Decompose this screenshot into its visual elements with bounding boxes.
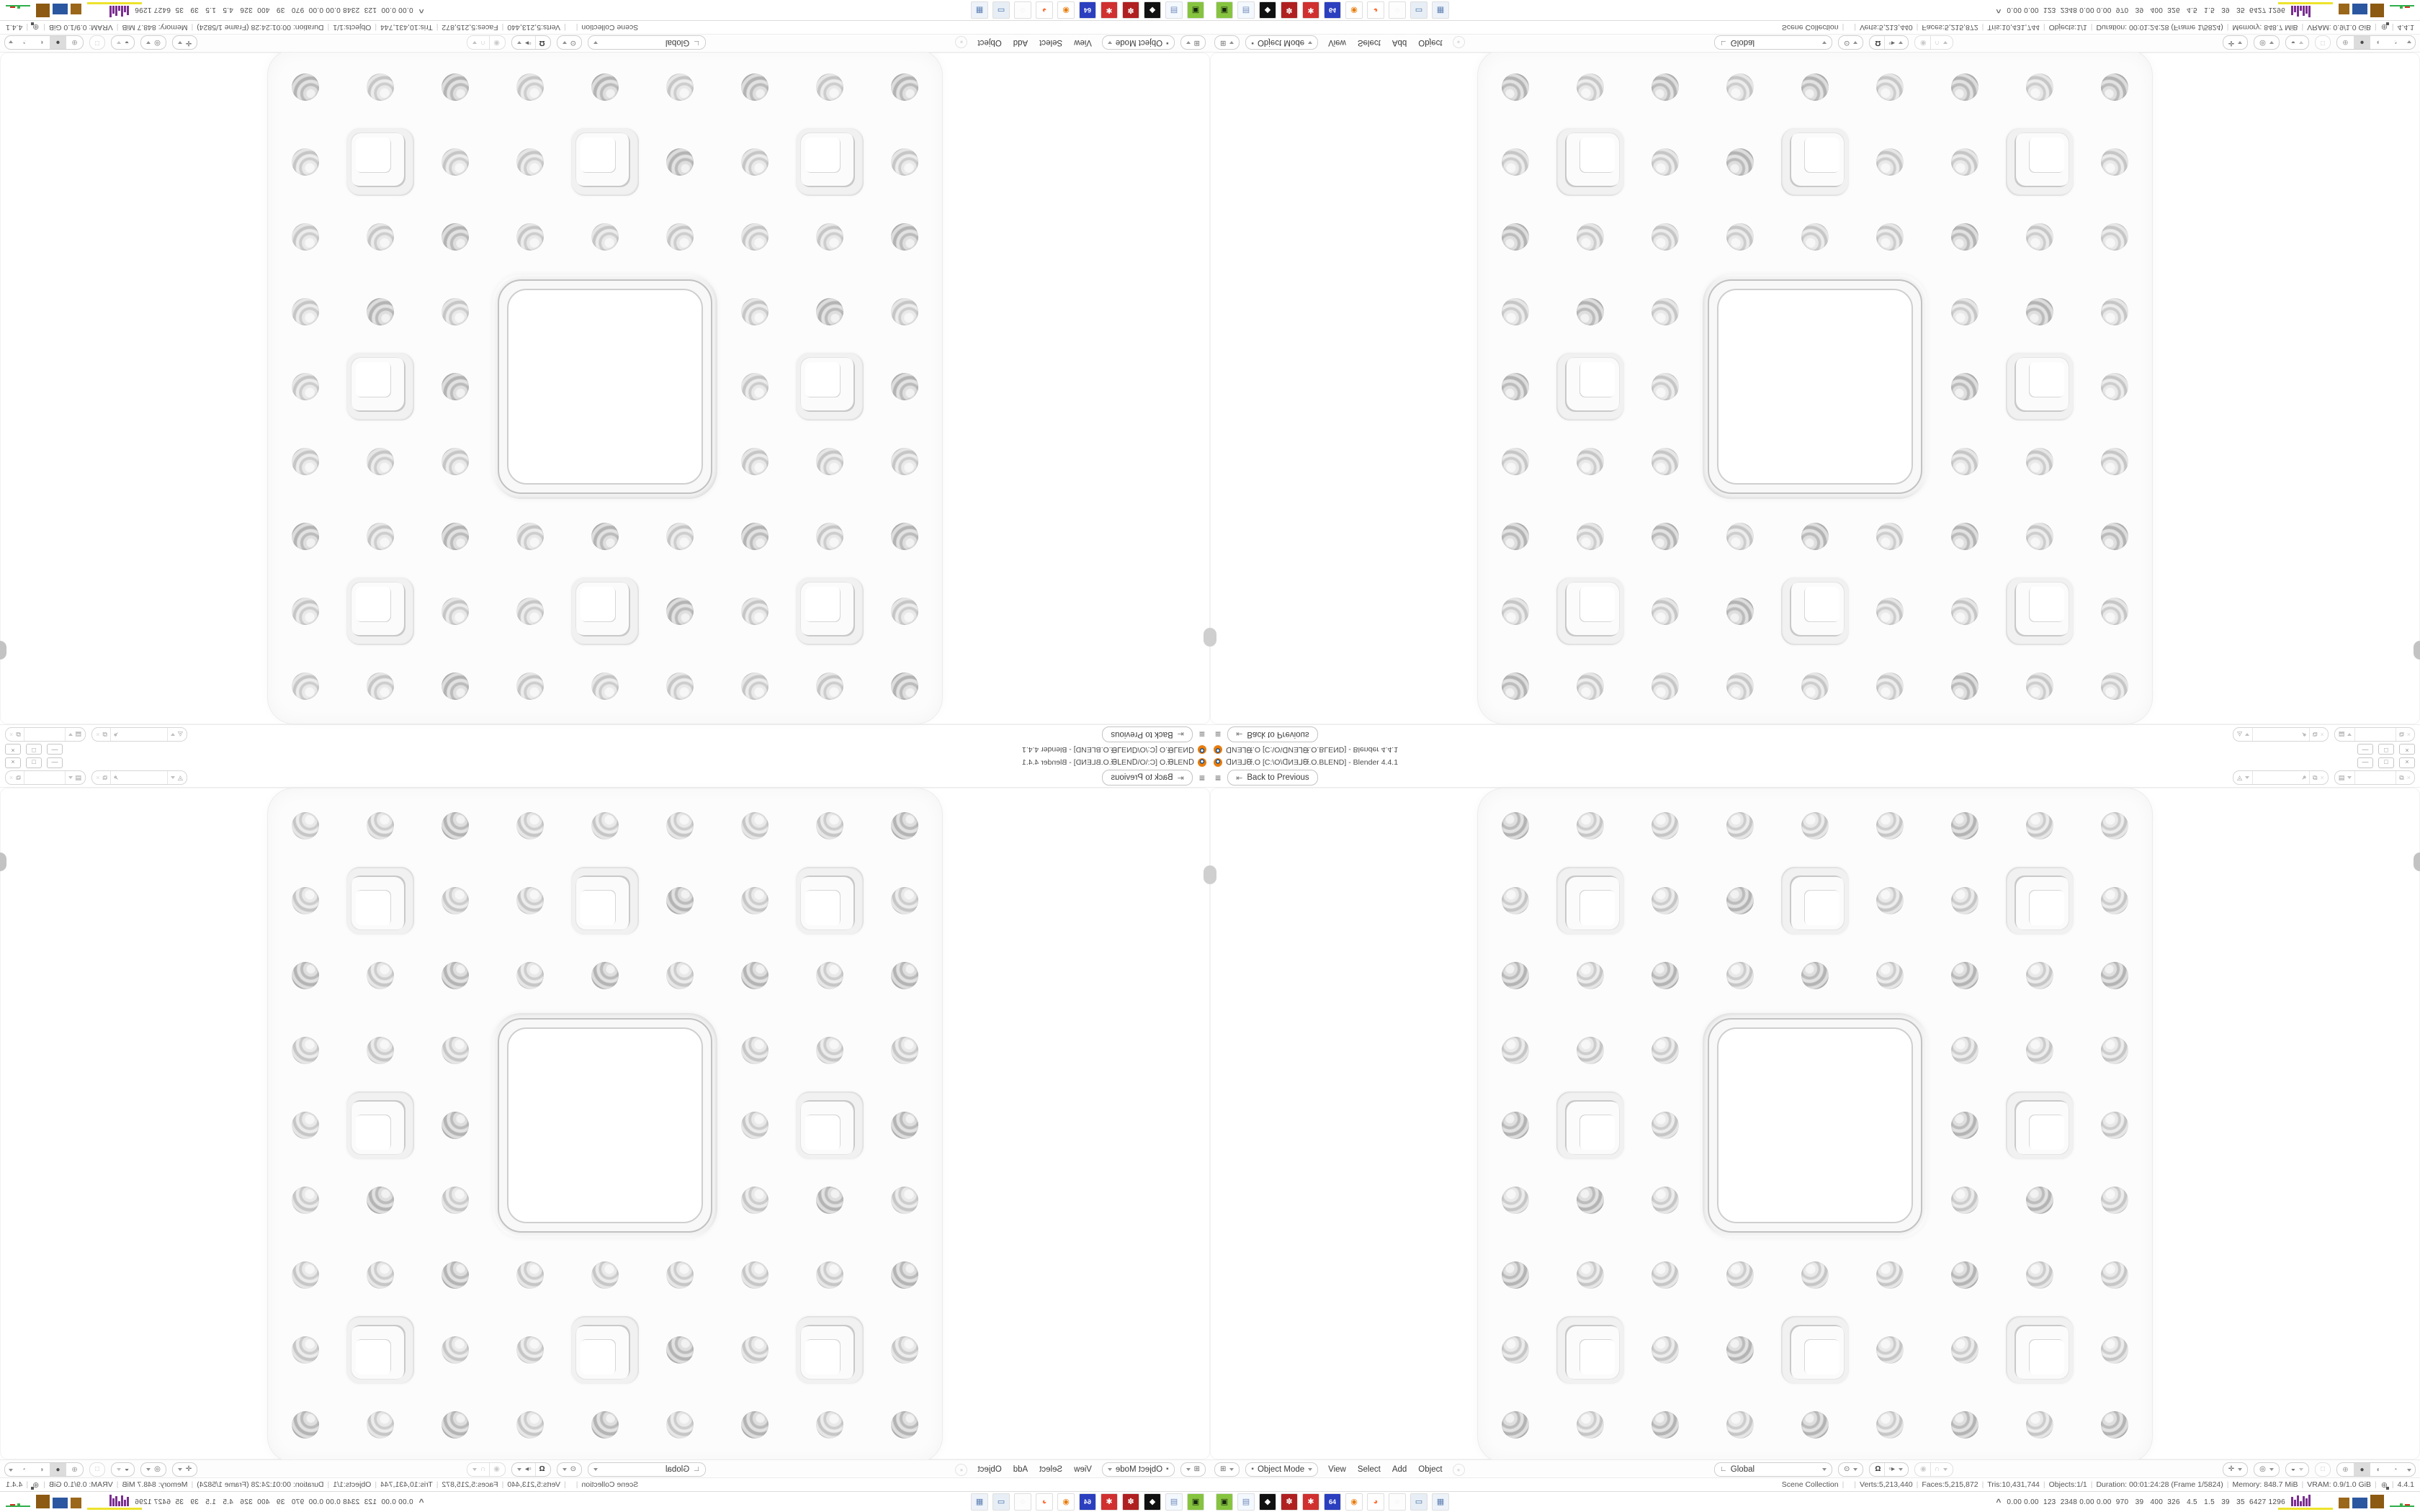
- sponge-hole: [1577, 298, 1604, 325]
- back-to-previous-button[interactable]: ⇤ Back to Previous: [1102, 770, 1193, 786]
- chevron-down-icon: [9, 1469, 13, 1472]
- snapping-control[interactable]: Ω ▫▸: [511, 1462, 551, 1477]
- menu-select[interactable]: Select: [1039, 38, 1062, 47]
- hamburger-menu-icon[interactable]: ≡: [1199, 773, 1205, 783]
- scene-selector[interactable]: ◬ ⧉ ×: [91, 770, 187, 785]
- minimize-button[interactable]: —: [47, 744, 63, 755]
- brown-meter-block: [71, 1498, 81, 1508]
- shading-wireframe-button[interactable]: ⊕: [2337, 36, 2354, 49]
- snap-to-icon: ▫▸: [525, 39, 532, 46]
- red-gear-icon[interactable]: ✱: [1101, 1493, 1118, 1511]
- pin-icon[interactable]: [114, 732, 118, 737]
- show-overlays-dropdown[interactable]: ◎: [2254, 1462, 2280, 1477]
- sponge-hole: [292, 223, 319, 251]
- toggle-xray-button[interactable]: □: [2315, 1462, 2331, 1477]
- view-layer-selector[interactable]: ▤ ⧉ ×: [2334, 770, 2415, 785]
- aida64-badge-icon[interactable]: ✽: [1122, 1, 1139, 19]
- xray-settings-dropdown[interactable]: ◒: [111, 35, 135, 50]
- sponge-hole: [2026, 962, 2053, 989]
- red-gear-icon[interactable]: ✱: [1302, 1, 1319, 19]
- view-layer-name-field[interactable]: [2354, 728, 2396, 741]
- calculator-icon[interactable]: ▦: [971, 1493, 988, 1511]
- sponge-hole: [516, 598, 544, 625]
- shading-rendered-button[interactable]: ◔: [2387, 1463, 2403, 1476]
- editor-type-button[interactable]: ⊞: [1180, 1462, 1206, 1477]
- gizmo-icon: ✛: [2228, 1466, 2234, 1473]
- sponge-hole: [1781, 577, 1849, 645]
- shading-rendered-button[interactable]: ◔: [17, 1463, 33, 1476]
- editor-type-button[interactable]: ⊞: [1180, 35, 1206, 50]
- sponge-hole: [1726, 73, 1754, 101]
- toolbar-toggle-tab[interactable]: [1210, 628, 1216, 647]
- sponge-hole: [2026, 812, 2053, 840]
- sponge-hole: [666, 598, 694, 625]
- viewport-3d[interactable]: [1210, 788, 2420, 1459]
- remote-desktop-icon[interactable]: ▭: [992, 1, 1010, 19]
- show-gizmo-dropdown[interactable]: ✛: [172, 35, 197, 50]
- sponge-hole: [1876, 598, 1904, 625]
- sponge-hole: [2026, 1187, 2053, 1214]
- transform-orientation-dropdown[interactable]: ∟ Global: [1714, 1462, 1832, 1477]
- view-layer-name-field[interactable]: [2354, 771, 2396, 784]
- orientation-label: Global: [665, 1465, 689, 1474]
- shading-wireframe-button[interactable]: ⊕: [2337, 1463, 2354, 1476]
- toggle-xray-button[interactable]: □: [89, 1462, 105, 1477]
- restore-button[interactable]: □: [2378, 744, 2394, 755]
- ghost-app-icon[interactable]: ○: [1389, 1, 1406, 19]
- pivot-point-dropdown[interactable]: ⊙: [557, 35, 582, 50]
- chevron-down-icon: [9, 40, 13, 43]
- menu-add[interactable]: Add: [1013, 1465, 1028, 1474]
- sponge-hole: [516, 73, 544, 101]
- status-segments: Scene Collection||Verts:5,213,440|Faces:…: [1782, 1480, 2371, 1489]
- shading-wireframe-button[interactable]: ⊕: [66, 1463, 83, 1476]
- close-button[interactable]: ×: [2399, 744, 2415, 755]
- proportional-editing-control[interactable]: ◉ ∩: [1914, 1462, 1953, 1477]
- chevron-down-icon: [2347, 733, 2352, 736]
- xray-settings-dropdown[interactable]: ◒: [2285, 35, 2309, 50]
- menu-view[interactable]: View: [1328, 1465, 1346, 1474]
- shading-material-button[interactable]: ◐: [2370, 1463, 2387, 1476]
- ghost-app-icon[interactable]: ○: [1389, 1493, 1406, 1511]
- status-segments: Scene Collection||Verts:5,213,440|Faces:…: [1782, 23, 2371, 32]
- brown-meter-block-2: [36, 4, 50, 18]
- remote-desktop-icon[interactable]: ▭: [1410, 1493, 1428, 1511]
- sidebar-toggle-tab[interactable]: [0, 852, 6, 871]
- magnet-icon[interactable]: Ω: [539, 1466, 545, 1473]
- sponge-hole: [816, 523, 843, 550]
- status-bar: Scene Collection||Verts:5,213,440|Faces:…: [0, 1477, 1210, 1491]
- sponge-hole: [292, 1261, 319, 1289]
- firefox-icon[interactable]: ◕: [1367, 1493, 1384, 1511]
- orientation-axis-icon: ∟: [693, 39, 700, 46]
- window-title: ᗡИƎ⅃ᙠ.O [C:\O\ᗡИƎ⅃ᙠ.O.BLEND] - Blender 4…: [1226, 745, 1398, 755]
- magnet-icon[interactable]: Ω: [539, 39, 545, 46]
- window-controls: — □ ×: [2357, 757, 2416, 768]
- toolbar-toggle-tab[interactable]: [1204, 865, 1210, 884]
- sidebar-toggle-tab[interactable]: [2414, 852, 2420, 871]
- shading-material-button[interactable]: ◐: [2370, 36, 2387, 49]
- window-titlebar: ᗡИƎ⅃ᙠ.O [C:\O\ᗡИƎ⅃ᙠ.O.BLEND] - Blender 4…: [1210, 756, 2420, 768]
- copy-scene-icon[interactable]: ⧉: [2313, 775, 2317, 781]
- topbar-right-cluster: ◬ ⧉ × ▤ ⧉ ×: [2233, 770, 2415, 785]
- snap-to-icon: ▫▸: [1888, 1466, 1895, 1473]
- gpu-monitor-icon[interactable]: ▣: [1187, 1, 1204, 19]
- image-viewer-icon[interactable]: ◆: [1144, 1, 1161, 19]
- sponge-hole: [1577, 73, 1604, 101]
- viewport-menus: ViewSelectAddObject: [1324, 1465, 1446, 1474]
- scene-icon: ◬: [178, 732, 183, 738]
- shading-rendered-button[interactable]: ◔: [2387, 36, 2403, 49]
- quadrant-top-left: ᗡИƎ⅃ᙠ.O [C:\O\ᗡИƎ⅃ᙠ.O.BLEND] - Blender 4…: [0, 0, 1210, 756]
- show-gizmo-dropdown[interactable]: ✛: [2223, 1462, 2248, 1477]
- aida64-badge-icon[interactable]: ✽: [1122, 1493, 1139, 1511]
- mode-selector[interactable]: ▪ Object Mode: [1102, 1462, 1175, 1477]
- tray-expand-icon[interactable]: ^: [1996, 5, 2001, 15]
- scene-icon: ◬: [178, 775, 183, 781]
- sponge-hole: [1951, 448, 1978, 475]
- sponge-hole: [516, 1336, 544, 1364]
- toggle-xray-button[interactable]: □: [89, 35, 105, 50]
- viewport-3d[interactable]: [0, 53, 1210, 724]
- image-viewer-icon[interactable]: ◆: [1259, 1, 1276, 19]
- quadrant-bottom-left: ᗡИƎ⅃ᙠ.O [C:\O\ᗡИƎ⅃ᙠ.O.BLEND] - Blender 4…: [0, 756, 1210, 1512]
- mode-transfer-icon[interactable]: ●: [1453, 1464, 1465, 1476]
- view-layer-selector[interactable]: ▤ ⧉ ×: [5, 770, 86, 785]
- unlink-scene-icon[interactable]: ×: [2321, 775, 2324, 781]
- sidebar-toggle-tab[interactable]: [0, 641, 6, 660]
- shading-wireframe-button[interactable]: ⊕: [66, 36, 83, 49]
- sponge-hole: [816, 298, 843, 325]
- hamburger-menu-icon[interactable]: ≡: [1199, 729, 1205, 739]
- pivot-icon: ⊙: [570, 1466, 576, 1473]
- firefox-icon[interactable]: ◕: [1036, 1, 1053, 19]
- firefox-icon[interactable]: ◕: [1367, 1, 1384, 19]
- floppy-64-icon[interactable]: 64: [1324, 1493, 1341, 1511]
- gpu-monitor-icon[interactable]: ▣: [1187, 1493, 1204, 1511]
- menu-add[interactable]: Add: [1392, 1465, 1407, 1474]
- show-overlays-dropdown[interactable]: ◎: [2254, 35, 2280, 50]
- sponge-hole: [442, 1411, 469, 1439]
- sponge-hole: [346, 867, 414, 935]
- copy-layer-icon[interactable]: ⧉: [16, 775, 20, 781]
- status-bar: Scene Collection||Verts:5,213,440|Faces:…: [1210, 21, 2420, 35]
- shading-material-button[interactable]: ◐: [33, 36, 50, 49]
- copy-layer-icon[interactable]: ⧉: [2399, 775, 2403, 781]
- close-button[interactable]: ×: [2399, 757, 2415, 768]
- snapping-control[interactable]: Ω ▫▸: [511, 35, 551, 50]
- sponge-hole: [346, 1316, 414, 1384]
- show-gizmo-dropdown[interactable]: ✛: [2223, 35, 2248, 50]
- tray-expand-icon[interactable]: ^: [419, 1497, 424, 1507]
- sponge-hole: [741, 1037, 768, 1064]
- menu-add[interactable]: Add: [1013, 38, 1028, 47]
- shading-solid-button[interactable]: ●: [2354, 36, 2370, 49]
- sponge-hole: [891, 672, 918, 700]
- restore-button[interactable]: □: [2378, 757, 2394, 768]
- shading-solid-button[interactable]: ●: [50, 36, 66, 49]
- sponge-hole: [891, 812, 918, 840]
- window-title: ᗡИƎ⅃ᙠ.O [C:\O\ᗡИƎ⅃ᙠ.O.BLEND] - Blender 4…: [1022, 758, 1194, 768]
- xray-sphere-icon: ◒: [125, 1466, 129, 1473]
- viewport-3d[interactable]: [0, 788, 1210, 1459]
- view-layer-name-field[interactable]: [24, 728, 66, 741]
- proportional-icon: ◉: [1920, 1466, 1927, 1473]
- blue-meter-block: [53, 1498, 68, 1508]
- menu-object[interactable]: Object: [1418, 38, 1442, 47]
- chevron-down-icon: [1943, 41, 1948, 44]
- sponge-hole: [516, 1411, 544, 1439]
- scene-name-field[interactable]: [2252, 771, 2310, 784]
- pin-icon[interactable]: [114, 775, 118, 780]
- back-to-previous-button[interactable]: ⇤ Back to Previous: [1102, 726, 1193, 742]
- sponge-hole: [1577, 223, 1604, 251]
- mode-transfer-icon[interactable]: ●: [1453, 37, 1465, 49]
- pivot-point-dropdown[interactable]: ⊙: [557, 1462, 582, 1477]
- menu-view[interactable]: View: [1328, 38, 1346, 47]
- menu-add[interactable]: Add: [1392, 38, 1407, 47]
- shading-solid-button[interactable]: ●: [50, 1463, 66, 1476]
- scene-selector[interactable]: ◬ ⧉ ×: [2233, 727, 2329, 742]
- sponge-hole: [891, 1037, 918, 1064]
- restore-button[interactable]: □: [26, 744, 42, 755]
- minimize-button[interactable]: —: [2357, 757, 2373, 768]
- back-to-previous-button[interactable]: ⇤ Back to Previous: [1227, 770, 1318, 786]
- menu-view[interactable]: View: [1074, 38, 1092, 47]
- notepad-icon[interactable]: ▤: [1165, 1493, 1183, 1511]
- menu-select[interactable]: Select: [1039, 1465, 1062, 1474]
- toolbar-toggle-tab[interactable]: [1210, 865, 1216, 884]
- proportional-editing-control[interactable]: ◉ ∩: [467, 35, 506, 50]
- gpu-monitor-icon[interactable]: ▣: [1216, 1, 1233, 19]
- notepad-icon[interactable]: ▤: [1165, 1, 1183, 19]
- scene-selector[interactable]: ◬ ⧉ ×: [91, 727, 187, 742]
- pivot-point-dropdown[interactable]: ⊙: [1838, 1462, 1863, 1477]
- pin-icon[interactable]: [2302, 732, 2306, 737]
- transform-orientation-dropdown[interactable]: ∟ Global: [588, 35, 706, 50]
- falloff-icon: ∩: [480, 39, 485, 46]
- proportional-editing-control[interactable]: ◉ ∩: [1914, 35, 1953, 50]
- xray-settings-dropdown[interactable]: ◒: [111, 1462, 135, 1477]
- minimize-button[interactable]: —: [2357, 744, 2373, 755]
- sponge-hole: [741, 373, 768, 400]
- unlink-scene-icon[interactable]: ×: [96, 732, 99, 738]
- sponge-hole: [1726, 672, 1754, 700]
- sponge-hole: [891, 298, 918, 325]
- scene-name-field[interactable]: [2252, 728, 2310, 741]
- close-button[interactable]: ×: [5, 757, 21, 768]
- floppy-64-icon[interactable]: 64: [1079, 1, 1096, 19]
- xray-sphere-icon: ◒: [2291, 1466, 2295, 1473]
- menu-view[interactable]: View: [1074, 1465, 1092, 1474]
- system-tray: ^ 0.00 0.00 123 2348 0.00 0.00 970 39 40…: [1996, 1495, 2414, 1510]
- transform-orientation-dropdown[interactable]: ∟ Global: [1714, 35, 1832, 50]
- sponge-hole: [666, 1336, 694, 1364]
- copy-scene-icon[interactable]: ⧉: [102, 775, 107, 781]
- calculator-icon[interactable]: ▦: [1432, 1493, 1449, 1511]
- sponge-hole: [2101, 1187, 2128, 1214]
- sponge-hole: [1951, 223, 1978, 251]
- proportional-icon: ◉: [493, 1466, 500, 1473]
- pin-icon[interactable]: [2302, 775, 2306, 780]
- aida64-badge-icon[interactable]: ✽: [1281, 1493, 1298, 1511]
- scene-name-field[interactable]: [110, 771, 168, 784]
- floppy-64-icon[interactable]: 64: [1079, 1493, 1096, 1511]
- remote-desktop-icon[interactable]: ▭: [992, 1493, 1010, 1511]
- blue-meter-block: [2352, 4, 2367, 15]
- show-gizmo-dropdown[interactable]: ✛: [172, 1462, 197, 1477]
- show-overlays-dropdown[interactable]: ◎: [140, 1462, 166, 1477]
- sponge-hole: [1951, 1261, 1978, 1289]
- magnet-icon[interactable]: Ω: [1875, 1466, 1881, 1473]
- magnet-icon[interactable]: Ω: [1875, 39, 1881, 46]
- sponge-hole: [2006, 867, 2074, 935]
- chevron-down-icon: [593, 41, 598, 44]
- sponge-hole: [1556, 1092, 1624, 1159]
- mode-transfer-icon[interactable]: ●: [955, 37, 967, 49]
- pivot-point-dropdown[interactable]: ⊙: [1838, 35, 1863, 50]
- toolbar-toggle-tab[interactable]: [1204, 628, 1210, 647]
- header-middle-cluster: ∟ Global ⊙ Ω ▫▸ ◉ ∩: [467, 1462, 706, 1477]
- back-to-previous-button[interactable]: ⇤ Back to Previous: [1227, 726, 1318, 742]
- sponge-hole: [2101, 1037, 2128, 1064]
- chevron-down-icon: [1853, 1468, 1857, 1471]
- tray-histogram: [2291, 1495, 2333, 1510]
- sponge-hole: [1577, 812, 1604, 840]
- header-left-cluster: ⊞ ▪ Object Mode ViewSelectAddObject ●: [1214, 35, 1465, 50]
- sidebar-toggle-tab[interactable]: [2414, 641, 2420, 660]
- sponge-hole: [666, 223, 694, 251]
- close-button[interactable]: ×: [5, 744, 21, 755]
- aida64-badge-icon[interactable]: ✽: [1281, 1, 1298, 19]
- tray-expand-icon[interactable]: ^: [419, 5, 424, 15]
- notepad-icon[interactable]: ▤: [1237, 1, 1255, 19]
- transform-orientation-dropdown[interactable]: ∟ Global: [588, 1462, 706, 1477]
- menu-select[interactable]: Select: [1358, 1465, 1381, 1474]
- taskbar-icons: ▣▤◆✽✱64◉◕○▭▦: [1216, 1, 1449, 19]
- sponge-hole: [666, 1411, 694, 1439]
- view-layer-selector[interactable]: ▤ ⧉ ×: [2334, 727, 2415, 742]
- unlink-layer-icon[interactable]: ×: [9, 775, 13, 781]
- restore-button[interactable]: □: [26, 757, 42, 768]
- view-layer-selector[interactable]: ▤ ⧉ ×: [5, 727, 86, 742]
- proportional-editing-control[interactable]: ◉ ∩: [467, 1462, 506, 1477]
- copy-layer-icon[interactable]: ⧉: [2399, 732, 2403, 738]
- toggle-xray-button[interactable]: □: [2315, 35, 2331, 50]
- blender-app-icon[interactable]: ◉: [1345, 1493, 1363, 1511]
- mode-selector[interactable]: ▪ Object Mode: [1245, 1462, 1318, 1477]
- copy-scene-icon[interactable]: ⧉: [2313, 732, 2317, 738]
- blender-app-icon[interactable]: ◉: [1057, 1493, 1075, 1511]
- notepad-icon[interactable]: ▤: [1237, 1493, 1255, 1511]
- calculator-icon[interactable]: ▦: [971, 1, 988, 19]
- snapping-control[interactable]: Ω ▫▸: [1869, 1462, 1909, 1477]
- menu-select[interactable]: Select: [1358, 38, 1381, 47]
- editor-type-icon: ⊞: [1194, 1466, 1200, 1473]
- blender-app-icon[interactable]: ◉: [1057, 1, 1075, 19]
- sponge-hole: [367, 1037, 394, 1064]
- image-viewer-icon[interactable]: ◆: [1259, 1493, 1276, 1511]
- sponge-hole: [816, 1261, 843, 1289]
- menu-object[interactable]: Object: [1418, 1465, 1442, 1474]
- sponge-hole: [891, 223, 918, 251]
- system-tray: ^ 0.00 0.00 123 2348 0.00 0.00 970 39 40…: [6, 1495, 424, 1510]
- viewport-3d[interactable]: [1210, 53, 2420, 724]
- show-overlays-dropdown[interactable]: ◎: [140, 35, 166, 50]
- shading-rendered-button[interactable]: ◔: [17, 36, 33, 49]
- copy-scene-icon[interactable]: ⧉: [102, 732, 107, 738]
- sponge-hole: [1726, 223, 1754, 251]
- calculator-icon[interactable]: ▦: [1432, 1, 1449, 19]
- minimize-button[interactable]: —: [47, 757, 63, 768]
- mode-transfer-icon[interactable]: ●: [955, 1464, 967, 1476]
- unlink-layer-icon[interactable]: ×: [9, 732, 13, 738]
- unlink-scene-icon[interactable]: ×: [2321, 732, 2324, 738]
- status-segment: Tris:10,431,744: [1987, 23, 2040, 32]
- gpu-monitor-icon[interactable]: ▣: [1216, 1493, 1233, 1511]
- snapping-control[interactable]: Ω ▫▸: [1869, 35, 1909, 50]
- editor-type-button[interactable]: ⊞: [1214, 35, 1240, 50]
- orientation-label: Global: [665, 38, 689, 47]
- unlink-layer-icon[interactable]: ×: [2407, 775, 2411, 781]
- hamburger-menu-icon[interactable]: ≡: [1215, 773, 1221, 783]
- tray-expand-icon[interactable]: ^: [1996, 1497, 2001, 1507]
- status-segment: Memory: 848.7 MiB: [2232, 23, 2298, 32]
- red-gear-icon[interactable]: ✱: [1101, 1, 1118, 19]
- unlink-layer-icon[interactable]: ×: [2407, 732, 2411, 738]
- chevron-down-icon: [1108, 41, 1112, 44]
- floppy-64-icon[interactable]: 64: [1324, 1, 1341, 19]
- xray-settings-dropdown[interactable]: ◒: [2285, 1462, 2309, 1477]
- remote-desktop-icon[interactable]: ▭: [1410, 1, 1428, 19]
- ghost-app-icon[interactable]: ○: [1014, 1493, 1031, 1511]
- sponge-hole: [891, 73, 918, 101]
- ghost-app-icon[interactable]: ○: [1014, 1, 1031, 19]
- hamburger-menu-icon[interactable]: ≡: [1215, 729, 1221, 739]
- mode-selector[interactable]: ▪ Object Mode: [1245, 35, 1318, 50]
- unlink-scene-icon[interactable]: ×: [96, 775, 99, 781]
- copy-layer-icon[interactable]: ⧉: [16, 732, 20, 738]
- shading-material-button[interactable]: ◐: [33, 1463, 50, 1476]
- sponge-hole: [1577, 1411, 1604, 1439]
- red-gear-icon[interactable]: ✱: [1302, 1493, 1319, 1511]
- view-layer-name-field[interactable]: [24, 771, 66, 784]
- sponge-hole: [1577, 962, 1604, 989]
- firefox-icon[interactable]: ◕: [1036, 1493, 1053, 1511]
- sponge-hole: [442, 962, 469, 989]
- image-viewer-icon[interactable]: ◆: [1144, 1493, 1161, 1511]
- sponge-hole: [442, 373, 469, 400]
- sponge-hole: [367, 1187, 394, 1214]
- sponge-hole: [1951, 148, 1978, 176]
- sponge-hole: [292, 298, 319, 325]
- chevron-down-icon: [1186, 41, 1191, 44]
- network-globe-icon: ⊕: [2381, 23, 2388, 32]
- falloff-icon: ∩: [1935, 1466, 1940, 1473]
- menu-object[interactable]: Object: [977, 38, 1001, 47]
- editor-type-button[interactable]: ⊞: [1214, 1462, 1240, 1477]
- sponge-hole: [292, 672, 319, 700]
- scene-selector[interactable]: ◬ ⧉ ×: [2233, 770, 2329, 785]
- sponge-hole: [891, 598, 918, 625]
- sponge-hole: [1652, 1411, 1679, 1439]
- sponge-hole: [1652, 523, 1679, 550]
- scene-name-field[interactable]: [110, 728, 168, 741]
- blender-app-icon[interactable]: ◉: [1345, 1, 1363, 19]
- shading-solid-button[interactable]: ●: [2354, 1463, 2370, 1476]
- menu-object[interactable]: Object: [977, 1465, 1001, 1474]
- mode-selector[interactable]: ▪ Object Mode: [1102, 35, 1175, 50]
